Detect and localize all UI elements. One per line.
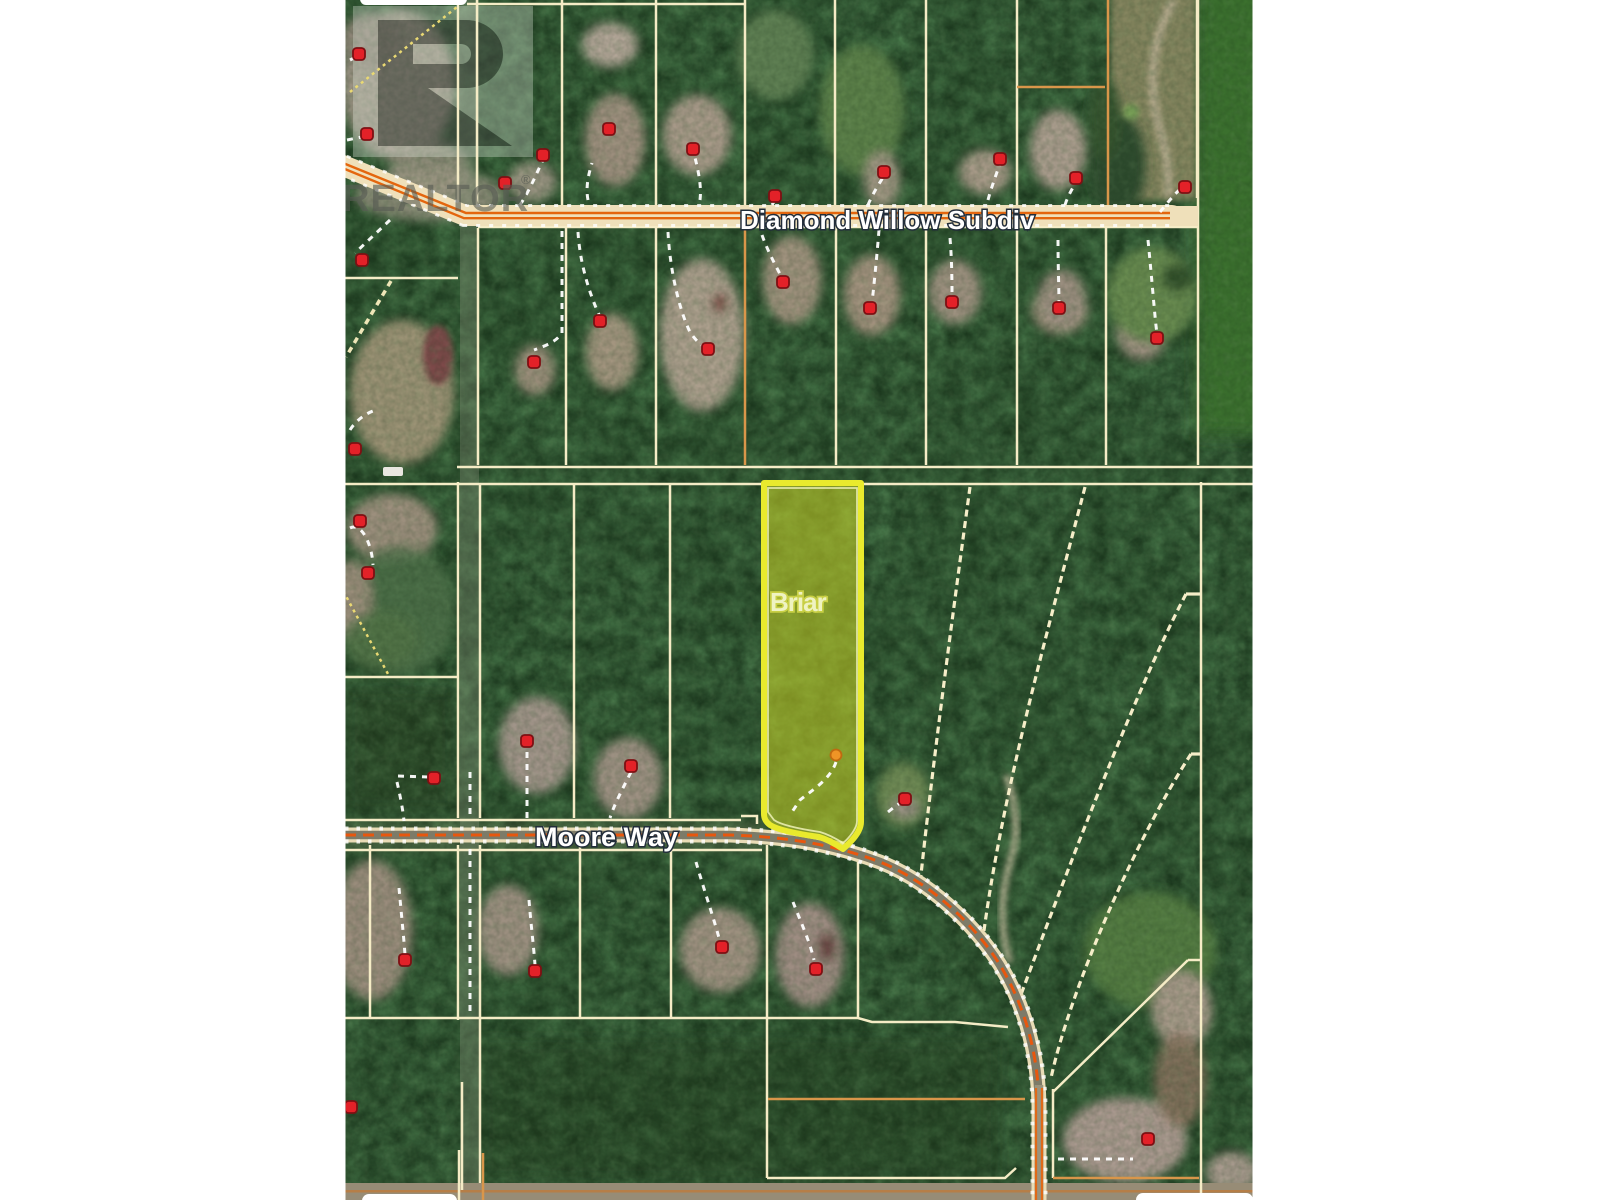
svg-text:Moore Way: Moore Way — [535, 822, 678, 852]
svg-text:Briar: Briar — [770, 587, 827, 617]
svg-text:REALTOR: REALTOR — [342, 178, 529, 220]
svg-text:®: ® — [521, 172, 531, 187]
svg-text:Diamond Willow Subdiv: Diamond Willow Subdiv — [740, 205, 1035, 235]
